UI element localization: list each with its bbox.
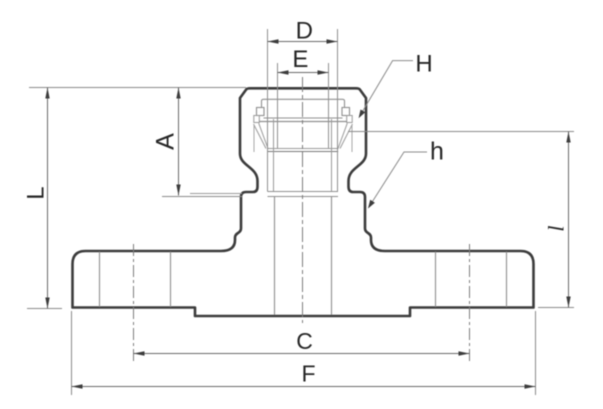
svg-text:h: h (430, 137, 444, 165)
svg-text:H: H (415, 50, 432, 77)
svg-text:L: L (22, 186, 49, 199)
svg-text:D: D (296, 18, 313, 45)
svg-text:C: C (296, 328, 313, 354)
svg-text:l: l (544, 225, 569, 231)
svg-text:F: F (301, 361, 315, 387)
svg-text:E: E (292, 46, 308, 73)
svg-text:A: A (152, 133, 180, 150)
